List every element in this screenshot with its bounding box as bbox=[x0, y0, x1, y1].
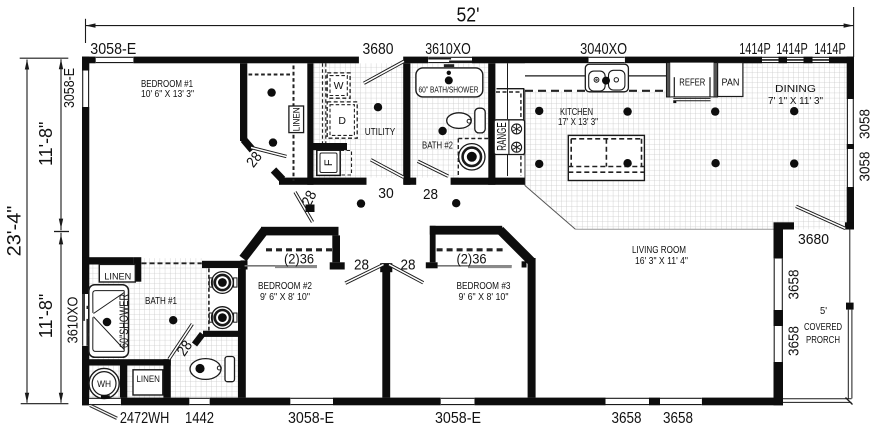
svg-text:1414P: 1414P bbox=[776, 41, 808, 58]
svg-text:60" BATH/SHOWER: 60" BATH/SHOWER bbox=[419, 85, 479, 94]
svg-text:3058: 3058 bbox=[857, 152, 874, 182]
svg-text:1414P: 1414P bbox=[814, 41, 846, 58]
svg-text:WH: WH bbox=[97, 379, 111, 389]
svg-text:3610XO: 3610XO bbox=[425, 41, 471, 58]
svg-text:3040XO: 3040XO bbox=[580, 41, 627, 58]
svg-text:3658: 3658 bbox=[612, 410, 642, 427]
svg-text:9' 6" X 8' 10": 9' 6" X 8' 10" bbox=[260, 291, 310, 303]
svg-text:3658: 3658 bbox=[786, 326, 803, 356]
svg-text:11'-8": 11'-8" bbox=[36, 122, 56, 166]
svg-text:3680: 3680 bbox=[363, 41, 394, 58]
svg-text:(2)36: (2)36 bbox=[457, 250, 487, 266]
svg-text:LINEN: LINEN bbox=[104, 271, 131, 282]
svg-text:BATH #1: BATH #1 bbox=[145, 295, 177, 307]
svg-text:PAN: PAN bbox=[722, 78, 740, 89]
svg-text:LINEN: LINEN bbox=[292, 107, 302, 131]
svg-text:11'-8": 11'-8" bbox=[36, 294, 56, 338]
svg-text:F: F bbox=[323, 159, 335, 166]
svg-text:RANGE: RANGE bbox=[494, 122, 509, 151]
svg-text:3058-E: 3058-E bbox=[435, 410, 481, 427]
svg-text:(2)36: (2)36 bbox=[284, 250, 314, 266]
svg-text:3058-E: 3058-E bbox=[61, 68, 78, 108]
svg-text:1442: 1442 bbox=[185, 410, 214, 427]
svg-text:30: 30 bbox=[378, 185, 394, 202]
svg-text:3680: 3680 bbox=[798, 231, 829, 248]
svg-text:UTILITY: UTILITY bbox=[365, 126, 396, 138]
svg-text:D: D bbox=[338, 115, 346, 127]
svg-text:9' 6" X 8' 10": 9' 6" X 8' 10" bbox=[459, 291, 509, 303]
svg-text:5': 5' bbox=[820, 305, 827, 317]
svg-text:1414P: 1414P bbox=[739, 41, 771, 58]
svg-text:3058-E: 3058-E bbox=[288, 410, 334, 427]
svg-text:28: 28 bbox=[423, 186, 438, 203]
svg-text:LINEN: LINEN bbox=[136, 374, 160, 385]
svg-text:3658: 3658 bbox=[786, 270, 803, 300]
svg-text:7' 1" X 11' 3": 7' 1" X 11' 3" bbox=[768, 95, 823, 107]
svg-text:REFER: REFER bbox=[679, 77, 705, 89]
svg-text:PRORCH: PRORCH bbox=[806, 334, 840, 346]
svg-text:COVERED: COVERED bbox=[804, 321, 842, 333]
svg-text:3610XO: 3610XO bbox=[65, 297, 82, 344]
svg-text:28: 28 bbox=[354, 256, 369, 273]
svg-text:17' X 13' 3": 17' X 13' 3" bbox=[558, 116, 598, 128]
svg-text:2472WH: 2472WH bbox=[120, 410, 170, 427]
svg-text:W: W bbox=[334, 80, 344, 92]
svg-text:28: 28 bbox=[401, 256, 416, 273]
svg-text:52': 52' bbox=[457, 4, 480, 26]
svg-text:3058-E: 3058-E bbox=[90, 41, 136, 58]
svg-text:23'-4": 23'-4" bbox=[5, 206, 26, 257]
svg-text:10' 6" X 13' 3": 10' 6" X 13' 3" bbox=[141, 88, 194, 100]
svg-text:DINING: DINING bbox=[775, 83, 816, 95]
svg-text:16' 3" X 11' 4": 16' 3" X 11' 4" bbox=[635, 255, 688, 267]
svg-text:60"SHOWER: 60"SHOWER bbox=[117, 294, 131, 348]
svg-text:BATH #2: BATH #2 bbox=[422, 140, 453, 152]
svg-text:3658: 3658 bbox=[663, 410, 693, 427]
svg-text:3058: 3058 bbox=[857, 109, 874, 139]
